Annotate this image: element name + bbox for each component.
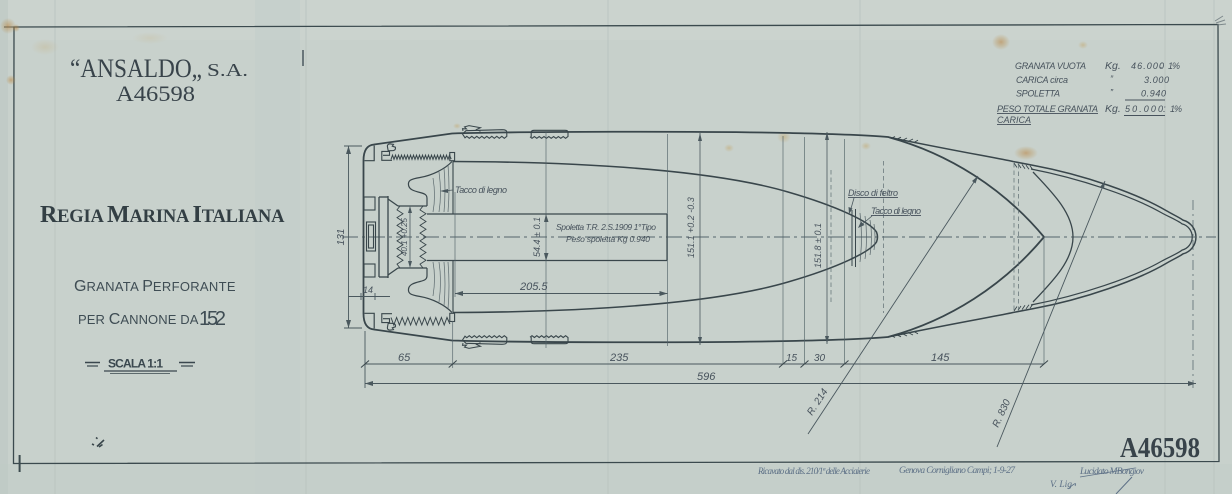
svg-text:Ricavato dal dis. 210/1ª delle: Ricavato dal dis. 210/1ª delle Acciaieri… (757, 466, 870, 476)
svg-text:131: 131 (336, 229, 347, 246)
svg-text:205.5: 205.5 (519, 281, 548, 293)
svg-text:30: 30 (814, 353, 826, 364)
svg-text:PER CANNONE DA: PER CANNONE DA (78, 311, 199, 328)
svg-text:596: 596 (697, 371, 716, 383)
svg-text:54.4 ± 0.1: 54.4 ± 0.1 (532, 217, 542, 257)
svg-text:152: 152 (199, 308, 226, 330)
svg-text:SPOLETTA: SPOLETTA (1016, 89, 1060, 99)
svg-text:65: 65 (398, 352, 411, 364)
svg-text:S.A.: S.A. (207, 60, 248, 80)
svg-text:Kg.: Kg. (1105, 103, 1121, 115)
svg-text:A46598: A46598 (1120, 433, 1200, 464)
svg-text:A46598: A46598 (116, 81, 195, 106)
svg-text::: : (1160, 60, 1163, 71)
svg-text:Kg.: Kg. (1105, 60, 1121, 72)
svg-text:235: 235 (609, 352, 629, 364)
svg-text:CARICA: CARICA (997, 115, 1031, 125)
svg-text:151.1 +0.2 -0.3: 151.1 +0.2 -0.3 (686, 197, 696, 258)
svg-text:PESO TOTALE GRANATA: PESO TOTALE GRANATA (997, 104, 1098, 114)
svg-text:Genova Cornigliano Campi; 1-9-: Genova Cornigliano Campi; 1-9-27 (899, 466, 1016, 476)
svg-text:145: 145 (931, 352, 950, 364)
svg-text:1%: 1% (1170, 104, 1182, 114)
svg-text:GRANATA PERFORANTE: GRANATA PERFORANTE (74, 278, 236, 295)
svg-text:14: 14 (363, 285, 373, 295)
svg-text:3.000: 3.000 (1144, 75, 1169, 85)
svg-text:CARICA circa: CARICA circa (1016, 75, 1068, 85)
svg-text:15: 15 (786, 353, 798, 364)
svg-text:Tacco di legno: Tacco di legno (871, 206, 921, 216)
svg-text:Tacco di legno: Tacco di legno (455, 185, 507, 195)
svg-text:“ANSALDO„: “ANSALDO„ (70, 54, 202, 83)
svg-text:Peso spoletta Kg 0.940: Peso spoletta Kg 0.940 (566, 234, 650, 244)
svg-text:151.8 ± 0.1: 151.8 ± 0.1 (813, 223, 823, 268)
svg-text:Disco di feltro: Disco di feltro (848, 188, 898, 198)
svg-text::: : (1163, 104, 1166, 115)
svg-text:40.1 +0.25: 40.1 +0.25 (400, 217, 409, 256)
svg-text:SCALA 1:1: SCALA 1:1 (108, 357, 164, 371)
svg-text:1%: 1% (1168, 61, 1180, 71)
svg-text:GRANATA VUOTA: GRANATA VUOTA (1015, 61, 1086, 71)
svg-text:0.940: 0.940 (1141, 89, 1166, 99)
svg-text:Spoletta T.R. 2.S.1909 1°Tipo: Spoletta T.R. 2.S.1909 1°Tipo (556, 222, 656, 232)
